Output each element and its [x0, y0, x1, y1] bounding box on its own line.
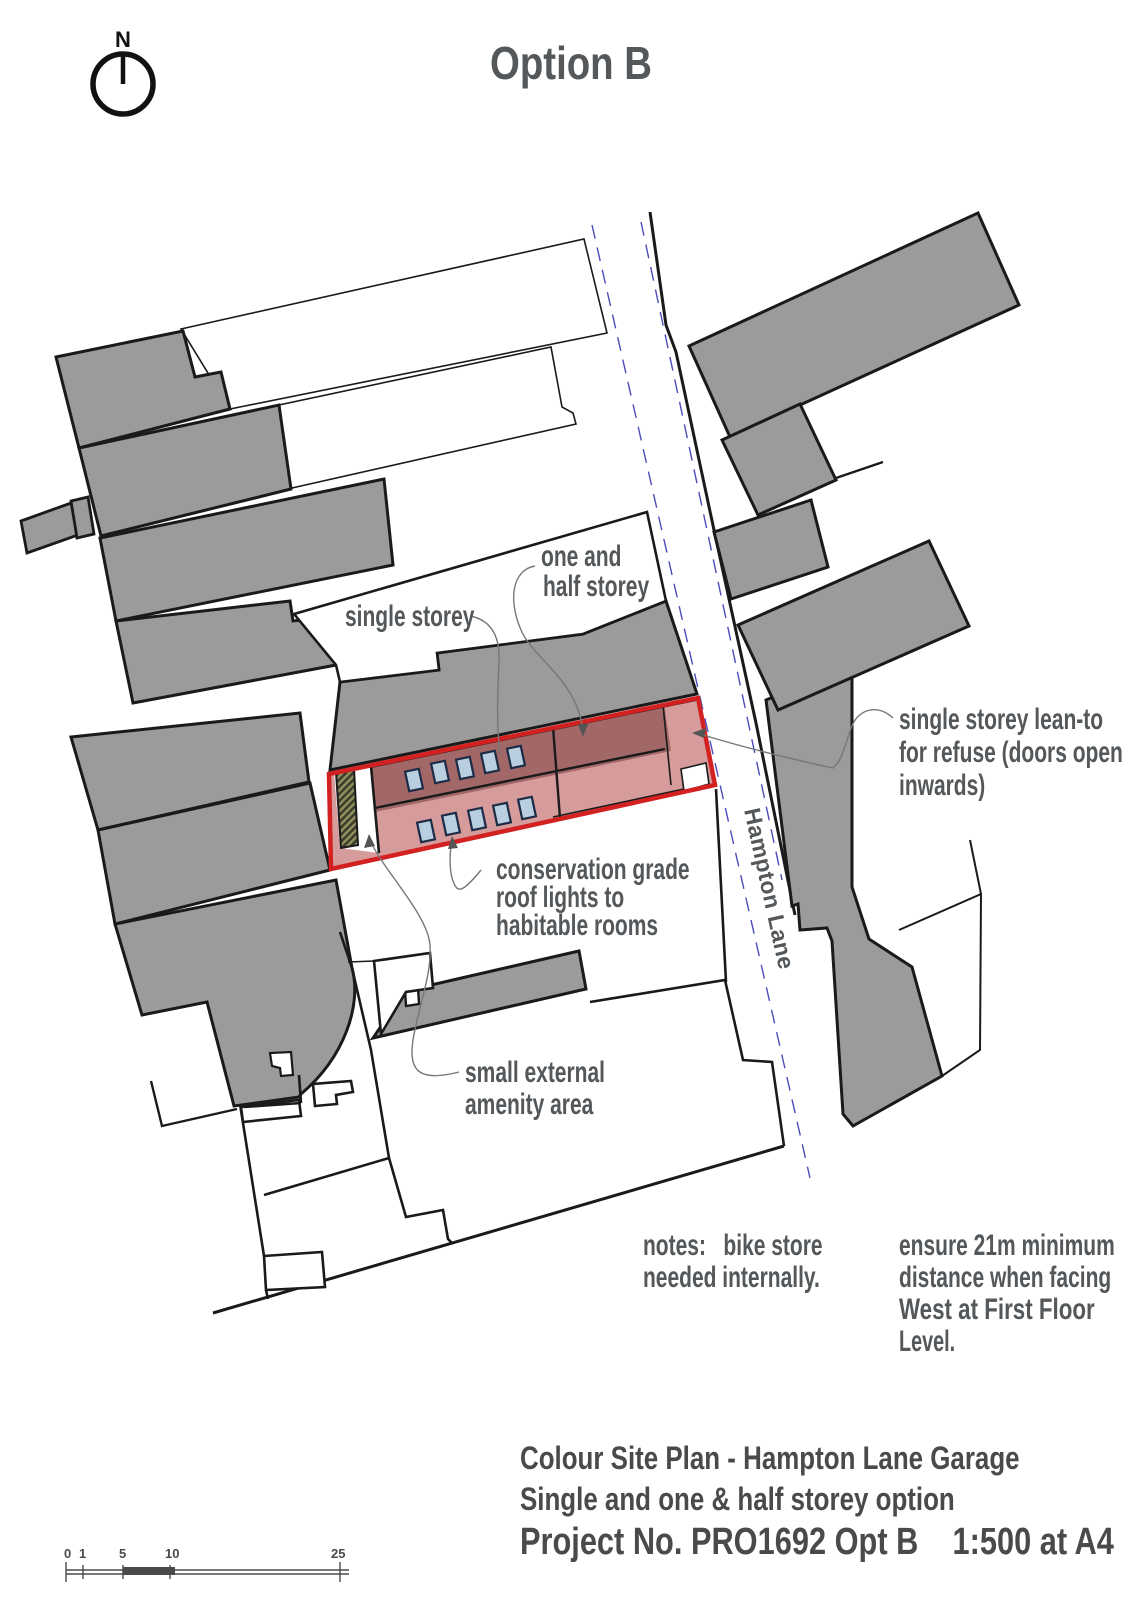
svg-text:Project No. PRO1692 Opt B 1: Project No. PRO1692 Opt B 1:500 at A4 — [520, 1521, 1115, 1563]
svg-text:distance when facing: distance when facing — [899, 1262, 1111, 1294]
svg-text:1: 1 — [79, 1546, 86, 1561]
svg-text:notes: bike store: notes: bike store — [643, 1230, 823, 1262]
svg-text:half storey: half storey — [543, 571, 650, 603]
svg-text:ensure 21m minimum: ensure 21m minimum — [899, 1230, 1115, 1262]
svg-text:5: 5 — [119, 1546, 126, 1561]
svg-text:needed internally.: needed internally. — [643, 1262, 820, 1294]
svg-text:single storey: single storey — [345, 601, 475, 633]
svg-text:Option B: Option B — [490, 37, 652, 89]
svg-text:N: N — [115, 27, 131, 52]
svg-text:Single and one & half storey o: Single and one & half storey option — [520, 1483, 955, 1518]
svg-text:Colour Site Plan - Hampton Lan: Colour Site Plan - Hampton Lane Garage — [520, 1442, 1020, 1477]
svg-text:for refuse (doors open: for refuse (doors open — [899, 737, 1123, 769]
svg-text:0: 0 — [64, 1546, 71, 1561]
svg-text:amenity area: amenity area — [465, 1089, 594, 1121]
svg-text:habitable rooms: habitable rooms — [496, 910, 658, 942]
svg-text:25: 25 — [331, 1546, 345, 1561]
svg-text:one and: one and — [541, 541, 621, 573]
svg-text:10: 10 — [165, 1546, 179, 1561]
svg-text:inwards): inwards) — [899, 770, 985, 802]
svg-text:Level.: Level. — [899, 1325, 955, 1358]
svg-text:single storey lean-to: single storey lean-to — [899, 704, 1103, 736]
svg-text:small external: small external — [465, 1057, 605, 1089]
svg-text:West at First Floor: West at First Floor — [899, 1292, 1095, 1326]
